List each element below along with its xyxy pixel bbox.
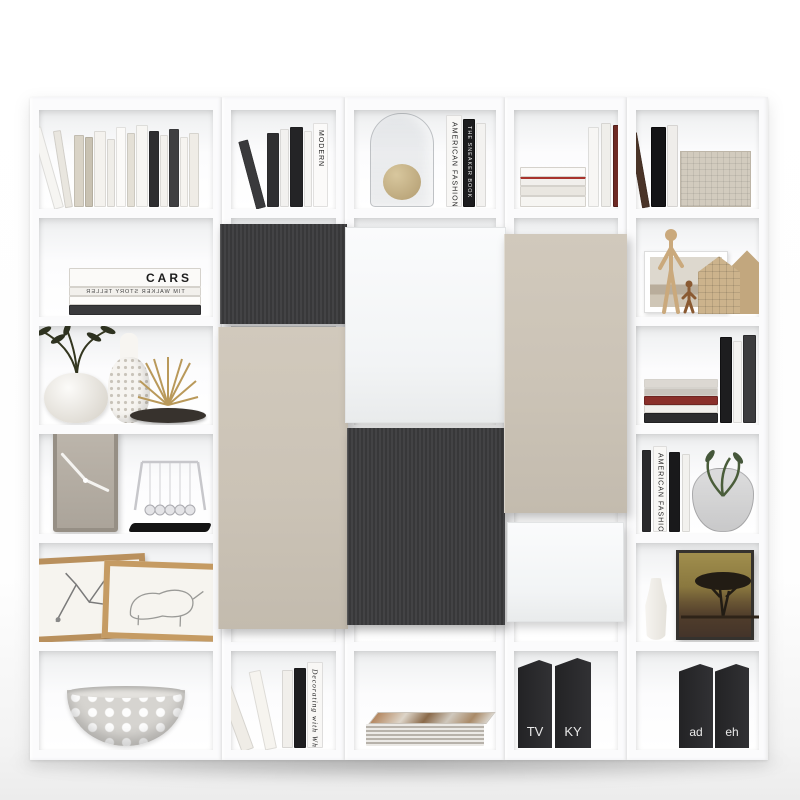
tim-walker-book: TIM WALKER STORY TELLER [69,287,201,296]
product-photo-stage: CARS TIM WALKER STORY TELLER [0,0,800,800]
cell-c5-r3-books [636,326,759,425]
book-spine [127,133,135,207]
book-spine [476,123,486,207]
modern-title: MODERN [317,124,324,167]
cell-c4-r1-books [514,110,618,209]
plant-leaves-icon [690,446,756,498]
binder-eh: eh [715,664,749,748]
tree-picture-frame [676,550,754,640]
book-spine [169,129,179,207]
book-horizontal [644,413,718,423]
picture-frame [102,560,213,642]
acacia-tree-icon [679,567,759,623]
book-spine [651,127,666,207]
book-horizontal [644,396,718,405]
door-panel-dark-center [347,428,505,625]
dried-ball-decor [383,164,421,200]
shelf-column-1: CARS TIM WALKER STORY TELLER [30,97,222,760]
american-fashion-title: AMERICAN FASHION [451,116,458,207]
book-spine [160,135,168,207]
book-spine [613,125,618,207]
sketch-animal-icon [108,566,213,636]
binder-ky-label: KY [564,724,581,739]
book-spine [290,127,303,207]
book-spine [149,131,159,207]
book-spine [669,452,680,532]
american-fashion-spine-2: AMERICAN FASHION [653,446,667,532]
magazine-pages [366,724,484,746]
bottle-vase [108,333,128,423]
white-vase [644,578,668,640]
modern-book-spine: MODERN [313,123,328,207]
cell-c1-r3-vases [39,326,213,425]
cell-c5-r1-box [636,110,759,209]
binder-ad-label: ad [689,725,702,739]
woven-box [680,151,751,207]
magazine-stack [366,712,484,746]
book-spine [294,668,306,748]
newtons-cradle-icon [132,458,208,524]
shelf-column-5: AMERICAN FASHION [627,97,768,760]
newtons-cradle [132,458,208,532]
cell-c3-r6-magazines [354,651,496,750]
book-spine [136,125,148,207]
perforated-bowl [67,690,185,746]
book-horizontal [69,305,201,315]
book-spine [642,450,651,532]
horizontal-book-stack [520,167,586,207]
book-horizontal [520,196,586,207]
door-panel-taupe-tall-left [218,327,348,629]
cell-c2-r6-books: Decorating with White [231,651,336,750]
cell-c1-r5-frames [39,543,213,642]
gold-starburst-icon [136,353,200,407]
cars-book-stack: CARS TIM WALKER STORY TELLER [69,268,201,315]
book-spine [720,337,732,423]
book-horizontal [644,405,718,413]
book-spine [116,127,126,207]
cell-c1-r6-bowl [39,651,213,750]
binder-eh-label: eh [725,725,738,739]
book-spine [85,137,93,207]
cell-c5-r6-binders: ad eh [636,651,759,750]
book-spine [304,131,312,207]
cell-c1-r2-cars-books: CARS TIM WALKER STORY TELLER [39,218,213,317]
book-horizontal [520,167,586,177]
magazine-top-cover [368,712,495,724]
cars-book: CARS [69,268,201,287]
book-spine [682,454,690,532]
binder-ky: KY [555,658,591,748]
cell-c1-r4-clock [39,434,213,533]
cell-c5-r4-vase: AMERICAN FASHION [636,434,759,533]
book-horizontal [69,296,201,305]
dark-books [642,125,678,207]
sneaker-book-spine: THE SNEAKER BOOK [463,119,475,207]
door-panel-white-center [345,227,506,423]
american-fashion-spine: AMERICAN FASHION [446,115,462,207]
cradle-base [128,523,212,532]
binder-tv: TV [518,660,552,748]
cell-c4-r6-binders: TV KY [514,651,618,750]
book-horizontal [644,388,718,396]
glass-vase-with-plant [692,458,754,532]
cell-c3-r1-cloche: AMERICAN FASHION THE SNEAKER BOOK [354,110,496,209]
book-spine [180,137,188,207]
binder-ad: ad [679,664,713,748]
small-figure-icon [680,280,698,314]
upright-dark-books [720,335,756,423]
book-spine [743,335,756,423]
clock-minute-hand [60,452,86,481]
horizontal-book-stack [644,379,718,423]
fashion-books: AMERICAN FASHION THE SNEAKER BOOK [446,115,486,207]
decorating-title: Decorating with White [311,663,320,748]
book-spine [107,139,115,207]
door-panel-white-small-right [507,522,624,622]
cell-c1-r1-books [39,110,213,209]
book-horizontal [644,379,718,388]
book-horizontal [520,177,586,186]
cell-c5-r2-figurine [636,218,759,317]
gold-air-plants [128,353,208,423]
dark-bowl [130,408,206,423]
door-panel-dark-upper-left [220,224,347,324]
book-horizontal [520,186,586,196]
book-spine [282,670,293,748]
book-spine [733,341,742,423]
cell-c5-r5-art [636,543,759,642]
shelving-unit: CARS TIM WALKER STORY TELLER [30,97,768,760]
wall-clock [53,434,118,531]
book-spine [636,132,650,208]
clock-hour-hand [85,479,110,493]
clock-center-pin [83,478,88,483]
binder-tv-label: TV [527,724,544,739]
tim-walker-title: TIM WALKER STORY TELLER [70,288,200,296]
cars-title: CARS [146,271,192,285]
book-spine [94,131,106,207]
decorating-book-spine: Decorating with White [307,662,323,748]
book-spine [189,133,199,207]
book-spine [601,123,611,207]
cell-c2-r1-books: MODERN [231,110,336,209]
book-spine [74,135,84,207]
american-fashion-title-2: AMERICAN FASHION [657,447,664,532]
door-panel-taupe-tall-right [504,234,627,513]
book-spine [249,670,277,750]
book-spine [238,140,266,210]
glass-cloche [370,113,434,207]
round-vase-with-branches [44,335,108,423]
book-spine [267,133,279,207]
book-spine [588,127,599,207]
book-spine [667,125,678,207]
sneaker-book-title: THE SNEAKER BOOK [466,120,472,198]
book-spine [280,129,289,207]
